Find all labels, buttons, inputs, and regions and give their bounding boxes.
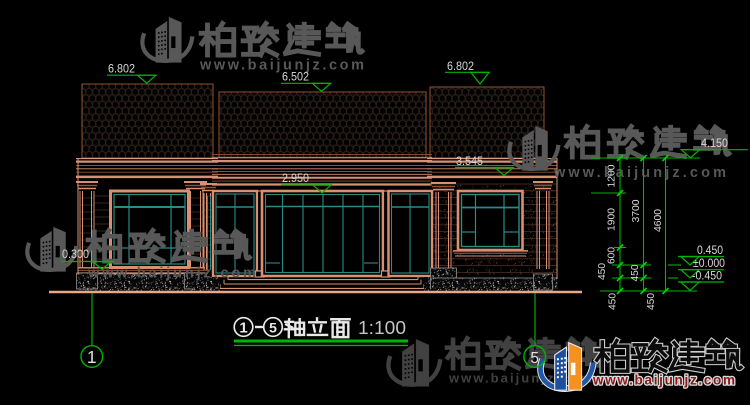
svg-text:±0.000: ±0.000 <box>693 258 725 270</box>
svg-text:0.450: 0.450 <box>697 245 723 257</box>
svg-text:4600: 4600 <box>652 209 664 232</box>
svg-text:6.802: 6.802 <box>447 61 474 73</box>
svg-text:3.545: 3.545 <box>456 156 483 168</box>
svg-text:5: 5 <box>269 320 277 336</box>
svg-text:600: 600 <box>606 247 618 264</box>
svg-text:3700: 3700 <box>630 199 642 222</box>
svg-text:1900: 1900 <box>606 208 618 231</box>
svg-text:5: 5 <box>530 350 539 367</box>
svg-text:6.502: 6.502 <box>282 72 309 84</box>
svg-text:450: 450 <box>607 293 619 310</box>
svg-text:4.150: 4.150 <box>701 138 728 150</box>
svg-text:www.baijunjz.com: www.baijunjz.com <box>553 165 726 181</box>
svg-text:www.baijunjz.com: www.baijunjz.com <box>592 373 735 388</box>
svg-text:6.802: 6.802 <box>108 64 135 76</box>
svg-text:1:100: 1:100 <box>358 317 406 338</box>
svg-text:1200: 1200 <box>606 164 618 187</box>
svg-text:450: 450 <box>645 293 657 310</box>
svg-text:0.300: 0.300 <box>62 249 89 261</box>
svg-text:450: 450 <box>629 264 641 281</box>
svg-text:-0.450: -0.450 <box>692 271 722 283</box>
svg-text:1: 1 <box>87 347 97 367</box>
svg-text:2.950: 2.950 <box>282 173 309 185</box>
svg-text:450: 450 <box>596 263 608 280</box>
svg-text:1: 1 <box>239 320 247 337</box>
